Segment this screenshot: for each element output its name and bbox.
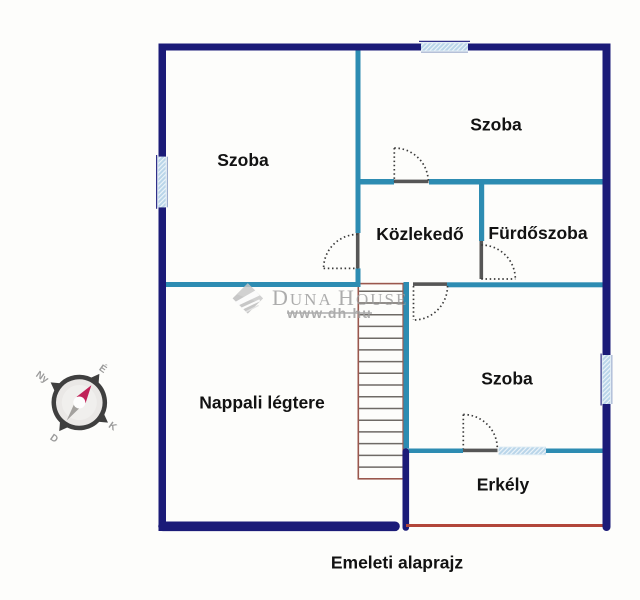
svg-text:Emeleti alaprajz: Emeleti alaprajz — [331, 553, 464, 573]
svg-text:Nappali légtere: Nappali légtere — [199, 393, 325, 413]
svg-text:Szoba: Szoba — [481, 369, 533, 389]
svg-text:Fürdőszoba: Fürdőszoba — [488, 223, 587, 243]
svg-text:Szoba: Szoba — [217, 150, 269, 170]
svg-text:Erkély: Erkély — [477, 475, 530, 495]
svg-text:Közlekedő: Közlekedő — [376, 224, 464, 244]
svg-text:Szoba: Szoba — [470, 115, 522, 135]
